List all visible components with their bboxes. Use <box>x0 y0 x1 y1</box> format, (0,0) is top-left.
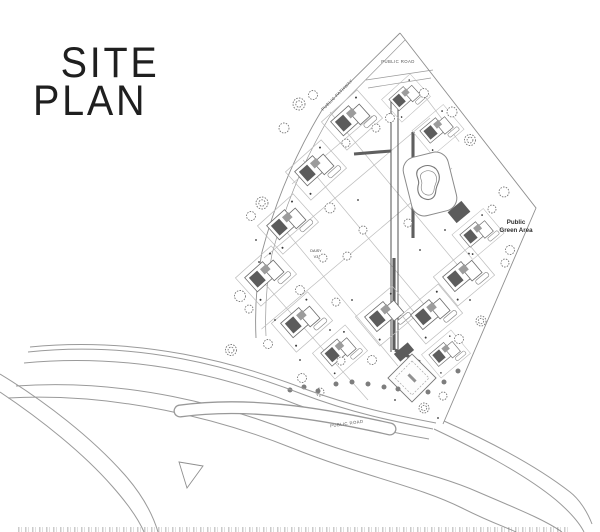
tree-icon <box>447 107 457 117</box>
lobby-building <box>388 354 436 402</box>
tree-icon <box>298 374 307 383</box>
villa-block <box>355 286 416 346</box>
site-plan-page: SITE PLAN <box>0 0 600 532</box>
tree-icon <box>319 254 327 262</box>
tree-icon <box>296 286 305 295</box>
top-road-edge-1 <box>366 70 433 80</box>
tree-icon <box>488 205 496 213</box>
villa-block <box>271 292 332 352</box>
tree-icon <box>499 187 509 197</box>
tree-icon <box>279 123 289 133</box>
public-green-area-label-line1: Public <box>507 219 526 226</box>
road-island-triangle <box>179 462 203 488</box>
tree-icon <box>506 246 515 255</box>
public-road-top-label: PUBLIC ROAD <box>381 59 415 64</box>
tree-icon <box>309 91 318 100</box>
villa-block <box>433 246 494 306</box>
tree-icon <box>359 226 367 234</box>
road-edge-5 <box>8 397 516 532</box>
tree-icon <box>368 356 377 365</box>
tree-icon <box>247 212 256 221</box>
bottom-road <box>0 344 592 532</box>
villa-block <box>285 140 346 200</box>
tree-icon <box>264 340 273 349</box>
shrub-row <box>288 369 461 395</box>
tree-icon <box>386 114 395 123</box>
road-branch-left-2 <box>0 392 144 532</box>
tree-icon <box>420 89 429 98</box>
shared-pool-area <box>400 149 459 218</box>
tree-icon <box>421 405 426 410</box>
public-green-area-label-line2: Green Area <box>499 227 533 234</box>
villa-daisy-label: DAISY <box>310 249 322 253</box>
villa-daisy-type-label: V3 <box>314 255 319 259</box>
tree-icon <box>259 200 265 206</box>
tree-icon <box>296 101 302 107</box>
tree-icon <box>501 259 509 267</box>
tree-icon <box>325 203 335 213</box>
tree-icon <box>332 298 340 306</box>
site-plan-drawing: PUBLIC ROAD PUBLIC PATHWAY Public Green … <box>0 0 600 532</box>
site-boundary <box>256 33 536 424</box>
tree-icon <box>404 219 412 227</box>
tree-icon <box>235 291 246 302</box>
boundary-west-pathway-inner <box>266 40 405 336</box>
road-median-fill <box>180 408 390 429</box>
tree-icon <box>467 137 473 143</box>
villa-blocks <box>235 74 504 379</box>
tree-icon <box>343 252 351 260</box>
tree-icon <box>342 139 350 147</box>
tree-icon <box>455 335 464 344</box>
road-branch-right-1 <box>434 429 584 532</box>
tree-icon <box>372 124 380 132</box>
road-branch-right-2 <box>444 421 592 524</box>
tree-icon <box>245 305 253 313</box>
tree-icon <box>439 392 447 400</box>
boundary-west-pathway-outer <box>256 33 400 338</box>
drive-lane-1 <box>354 151 391 154</box>
villa-block <box>312 325 367 379</box>
tree-icon <box>228 347 234 353</box>
trees <box>226 89 515 414</box>
tree-icon <box>337 357 345 365</box>
cropped-caption-text <box>18 527 570 532</box>
tree-icon <box>478 318 483 323</box>
